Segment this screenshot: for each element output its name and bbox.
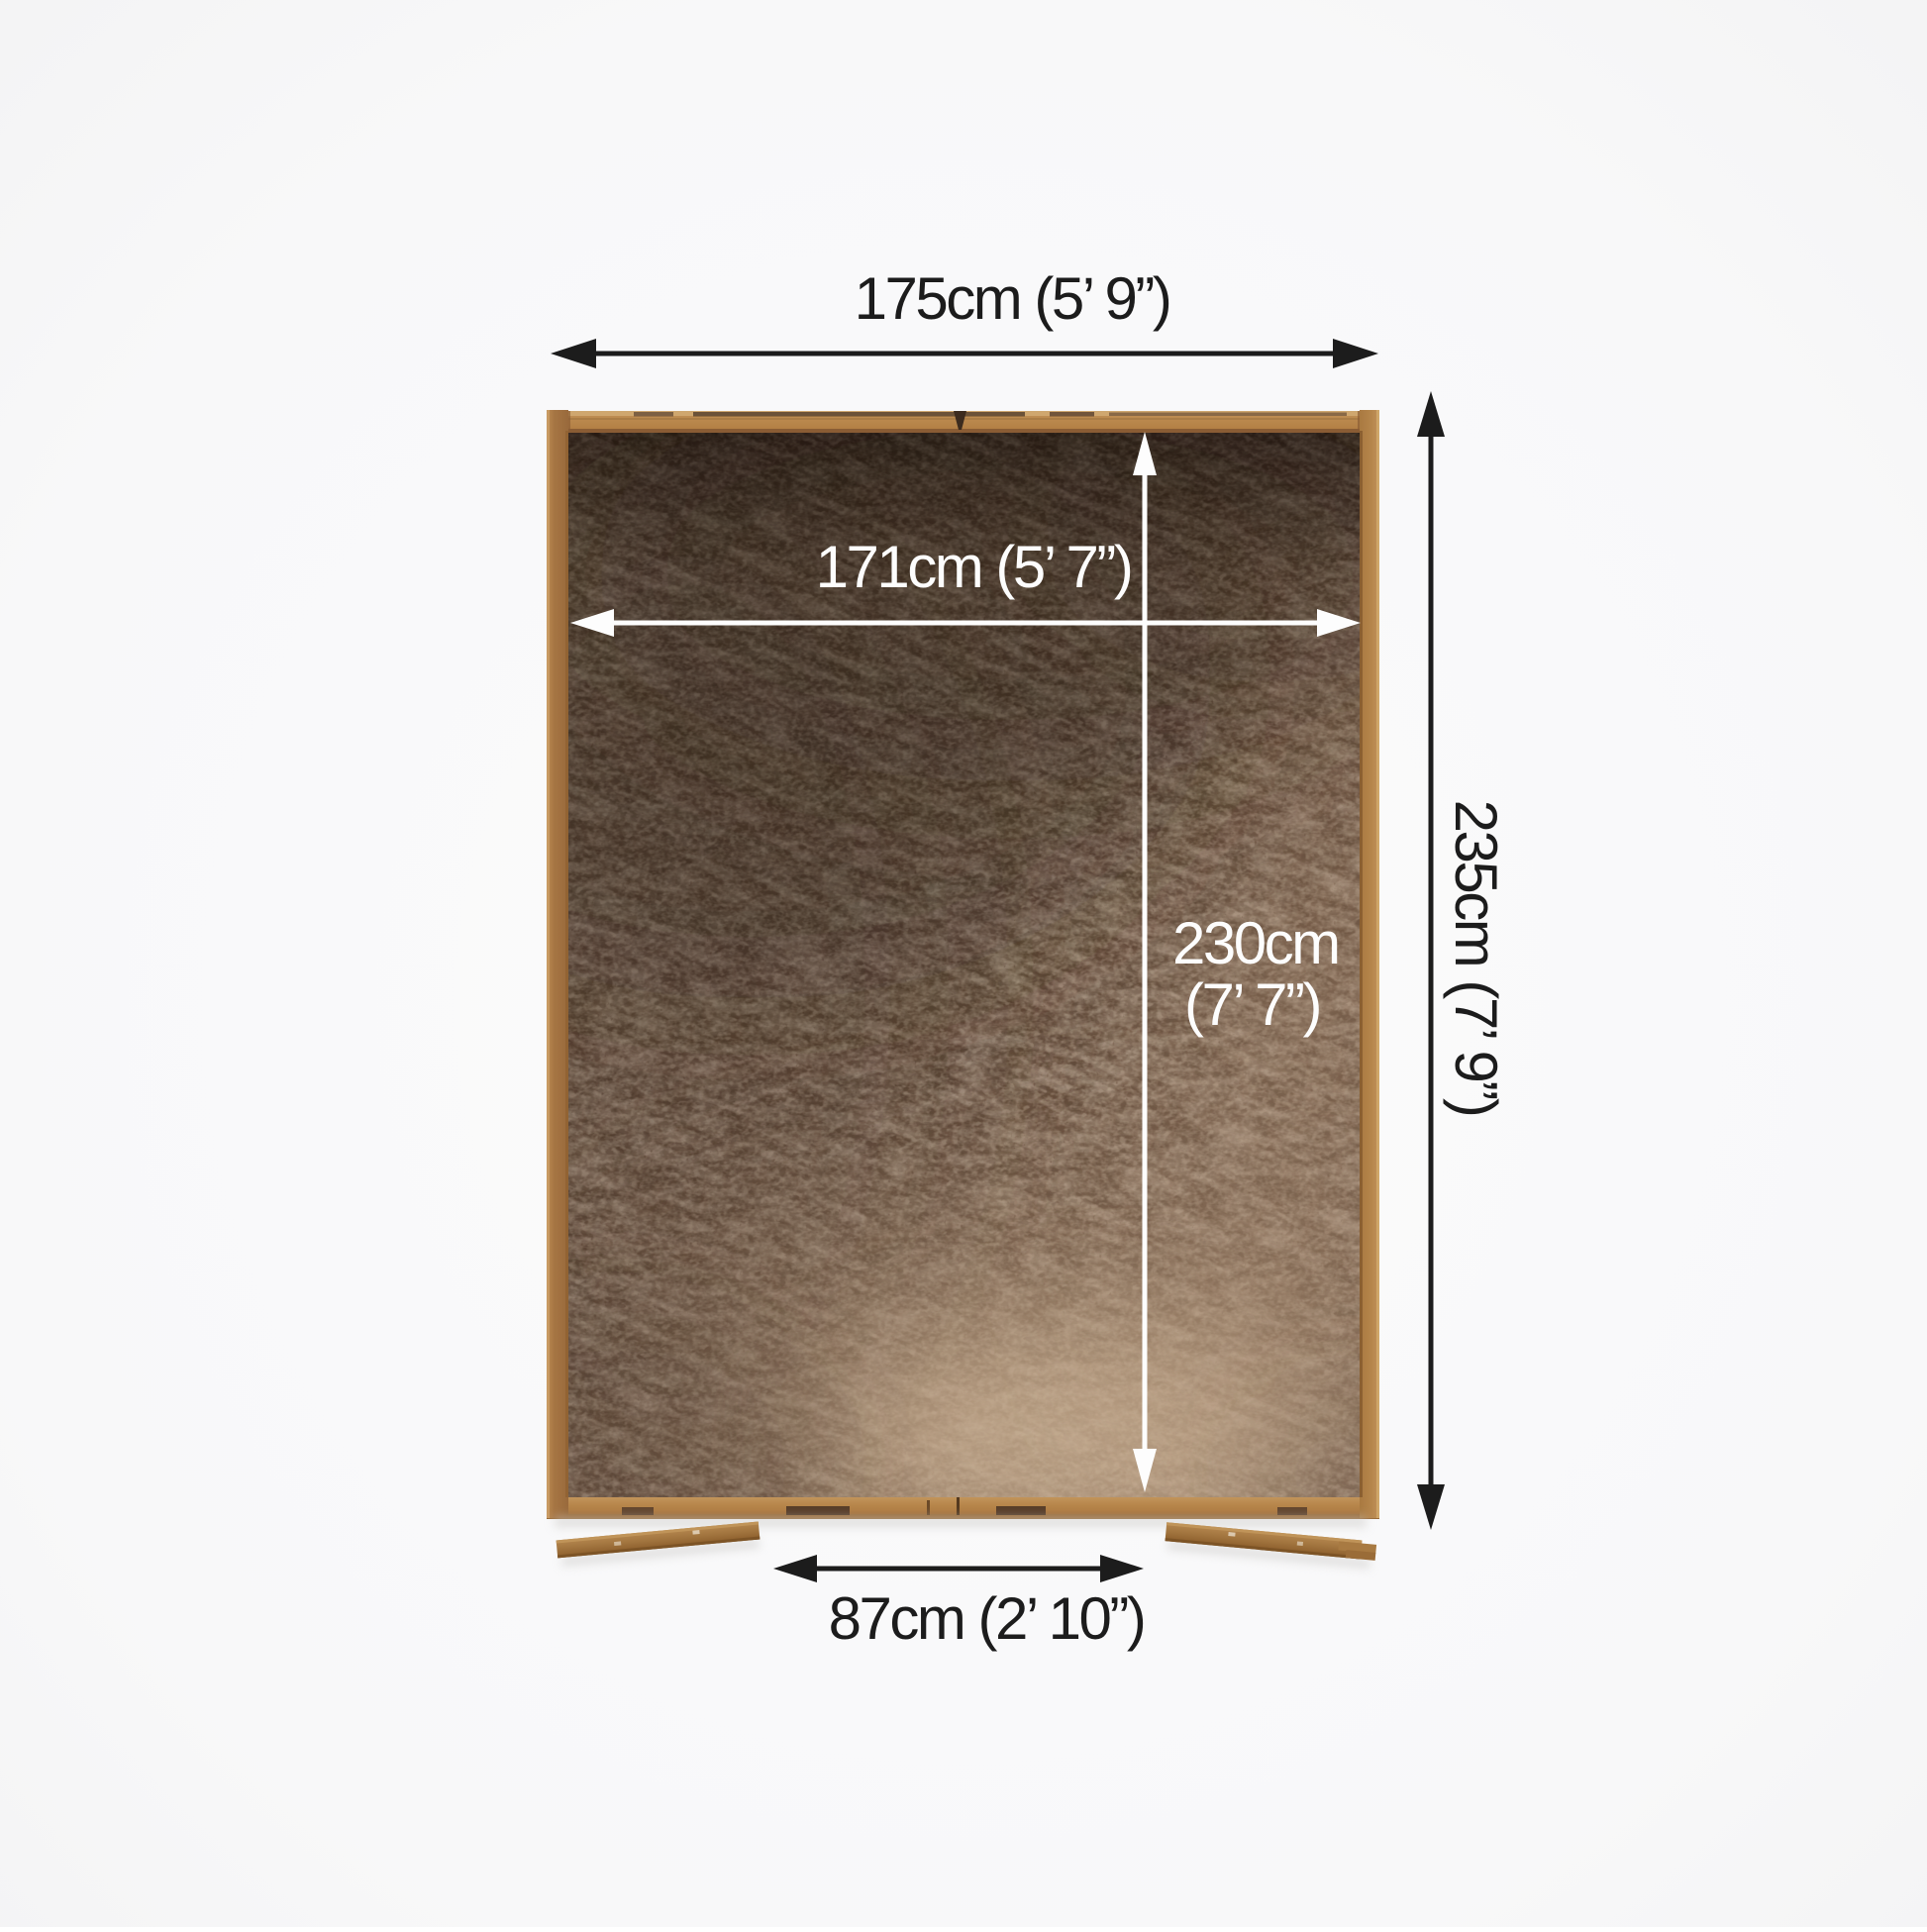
svg-text:175cm (5’ 9”): 175cm (5’ 9”): [855, 265, 1170, 332]
svg-text:(7’ 7”): (7’ 7”): [1184, 971, 1320, 1038]
svg-text:235cm (7’ 9”): 235cm (7’ 9”): [1443, 800, 1509, 1116]
svg-text:87cm (2’ 10”): 87cm (2’ 10”): [829, 1585, 1145, 1652]
svg-text:230cm: 230cm: [1172, 910, 1339, 976]
svg-text:171cm (5’ 7”): 171cm (5’ 7”): [816, 534, 1132, 600]
